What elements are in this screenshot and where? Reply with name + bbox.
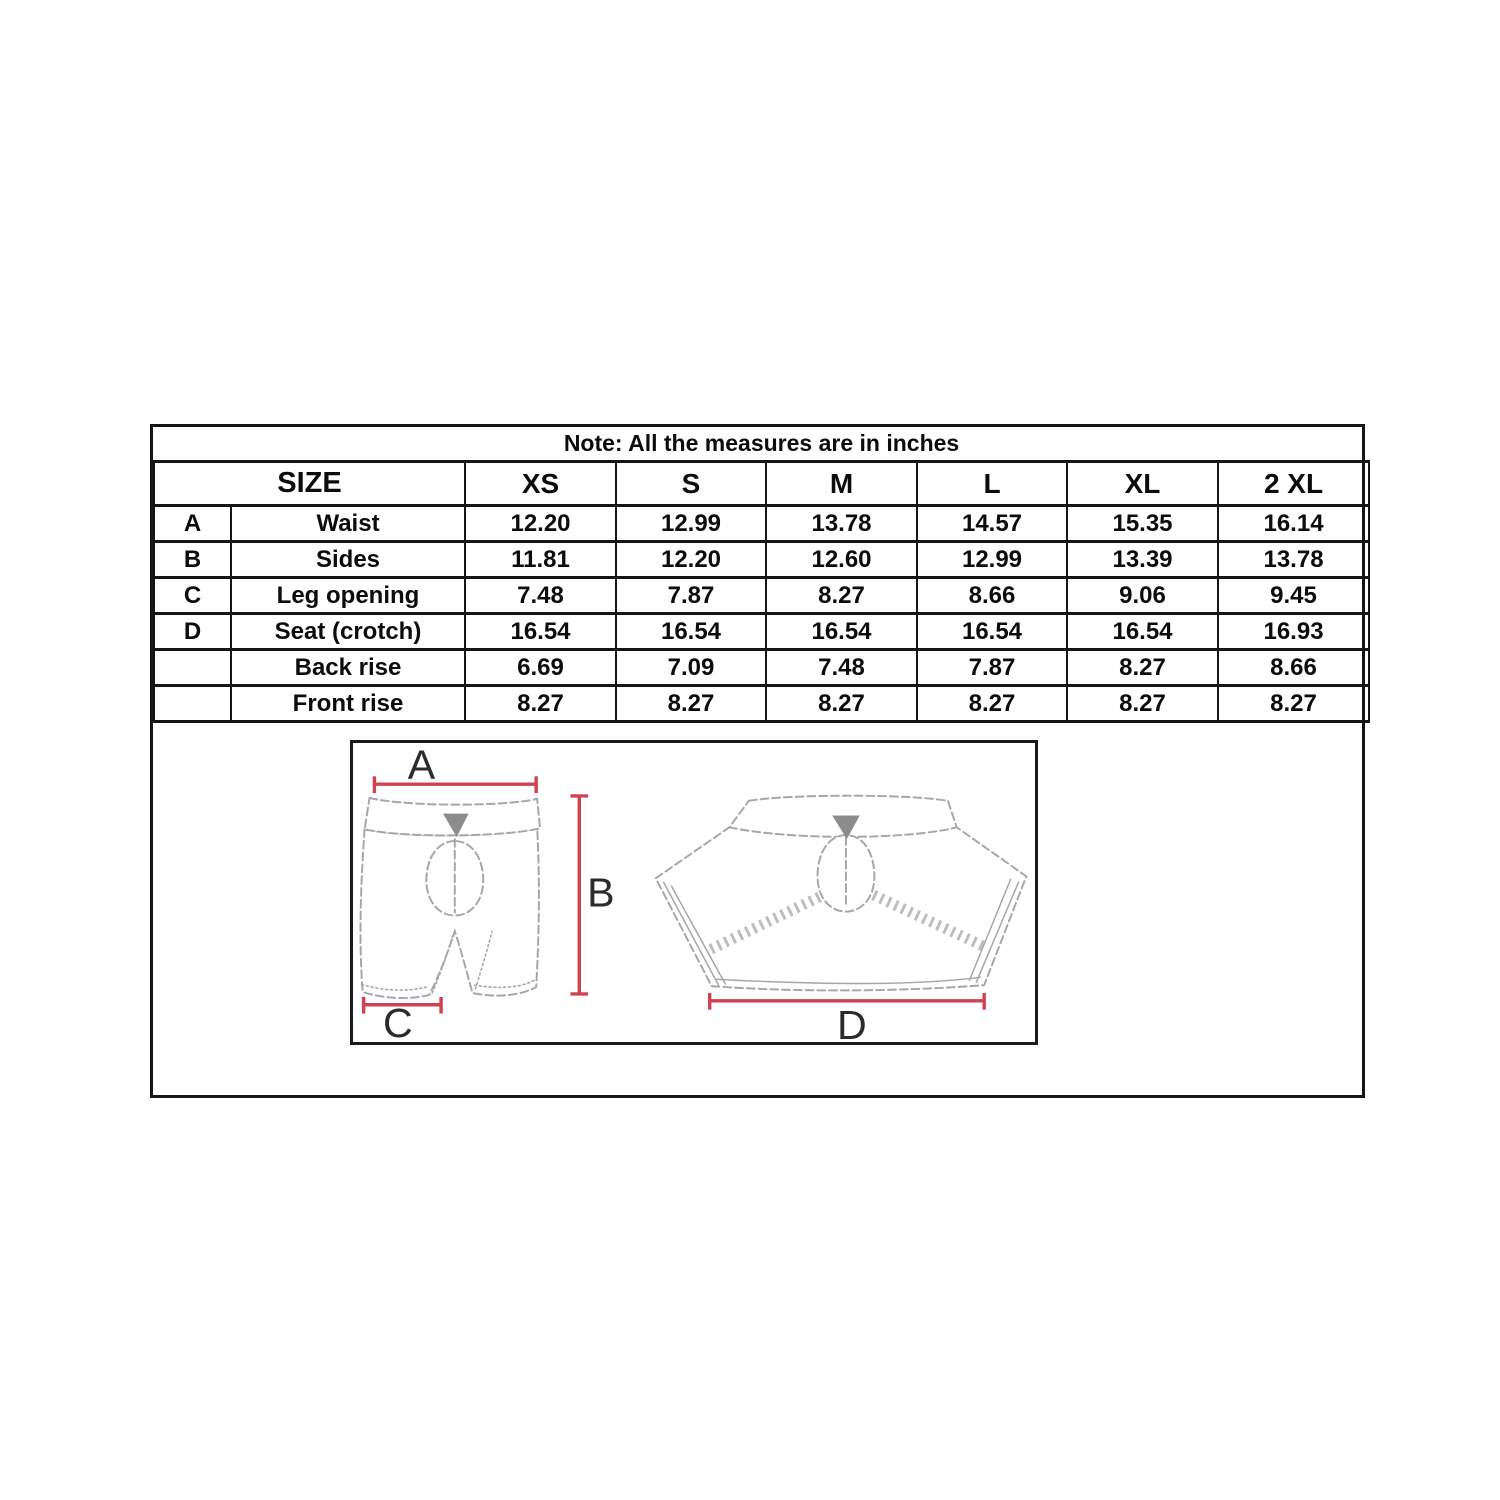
value-cell: 13.39 (1067, 542, 1218, 578)
row-key: B (154, 542, 231, 578)
value-cell: 7.87 (917, 650, 1067, 686)
row-key: C (154, 578, 231, 614)
row-label: Back rise (231, 650, 465, 686)
row-label: Seat (crotch) (231, 614, 465, 650)
label-A: A (408, 743, 436, 787)
row-key: D (154, 614, 231, 650)
value-cell: 8.66 (1218, 650, 1369, 686)
value-cell: 12.20 (616, 542, 766, 578)
value-cell: 8.27 (917, 686, 1067, 722)
col-header-l: L (917, 462, 1067, 506)
table-row-leg-opening: C Leg opening 7.48 7.87 8.27 8.66 9.06 9… (154, 578, 1369, 614)
front-view-garment (361, 798, 541, 998)
row-key (154, 650, 231, 686)
value-cell: 16.54 (766, 614, 917, 650)
row-key (154, 686, 231, 722)
value-cell: 9.45 (1218, 578, 1369, 614)
measurement-diagram: A B C D (350, 740, 1038, 1045)
col-header-xl: XL (1067, 462, 1218, 506)
row-label: Front rise (231, 686, 465, 722)
value-cell: 8.27 (1067, 686, 1218, 722)
value-cell: 8.27 (766, 578, 917, 614)
value-cell: 16.54 (465, 614, 616, 650)
value-cell: 12.20 (465, 506, 616, 542)
value-cell: 16.54 (1067, 614, 1218, 650)
table-row-front-rise: Front rise 8.27 8.27 8.27 8.27 8.27 8.27 (154, 686, 1369, 722)
label-C: C (383, 1000, 413, 1042)
row-key: A (154, 506, 231, 542)
size-chart-panel: Note: All the measures are in inches SIZ… (150, 424, 1365, 1098)
value-cell: 16.93 (1218, 614, 1369, 650)
size-chart-table: Note: All the measures are in inches SIZ… (153, 427, 1370, 723)
label-D: D (837, 1002, 867, 1042)
value-cell: 12.60 (766, 542, 917, 578)
value-cell: 13.78 (1218, 542, 1369, 578)
value-cell: 12.99 (616, 506, 766, 542)
value-cell: 8.27 (766, 686, 917, 722)
value-cell: 8.27 (1067, 650, 1218, 686)
value-cell: 7.09 (616, 650, 766, 686)
size-header: SIZE (154, 462, 465, 506)
value-cell: 7.87 (616, 578, 766, 614)
label-B: B (587, 870, 614, 916)
note-text: Note: All the measures are in inches (154, 427, 1369, 462)
value-cell: 9.06 (1067, 578, 1218, 614)
value-cell: 8.27 (465, 686, 616, 722)
value-cell: 14.57 (917, 506, 1067, 542)
col-header-s: S (616, 462, 766, 506)
note-row: Note: All the measures are in inches (154, 427, 1369, 462)
value-cell: 16.54 (917, 614, 1067, 650)
row-label: Sides (231, 542, 465, 578)
value-cell: 15.35 (1067, 506, 1218, 542)
col-header-xs: XS (465, 462, 616, 506)
garment-diagram-svg: A B C D (353, 743, 1035, 1042)
table-row-waist: A Waist 12.20 12.99 13.78 14.57 15.35 16… (154, 506, 1369, 542)
col-header-m: M (766, 462, 917, 506)
value-cell: 11.81 (465, 542, 616, 578)
table-row-seat: D Seat (crotch) 16.54 16.54 16.54 16.54 … (154, 614, 1369, 650)
value-cell: 16.14 (1218, 506, 1369, 542)
value-cell: 7.48 (766, 650, 917, 686)
row-label: Leg opening (231, 578, 465, 614)
value-cell: 16.54 (616, 614, 766, 650)
table-row-back-rise: Back rise 6.69 7.09 7.48 7.87 8.27 8.66 (154, 650, 1369, 686)
value-cell: 8.27 (616, 686, 766, 722)
value-cell: 13.78 (766, 506, 917, 542)
value-cell: 12.99 (917, 542, 1067, 578)
header-row: SIZE XS S M L XL 2 XL (154, 462, 1369, 506)
value-cell: 7.48 (465, 578, 616, 614)
value-cell: 8.66 (917, 578, 1067, 614)
value-cell: 8.27 (1218, 686, 1369, 722)
row-label: Waist (231, 506, 465, 542)
col-header-2xl: 2 XL (1218, 462, 1369, 506)
value-cell: 6.69 (465, 650, 616, 686)
table-row-sides: B Sides 11.81 12.20 12.60 12.99 13.39 13… (154, 542, 1369, 578)
